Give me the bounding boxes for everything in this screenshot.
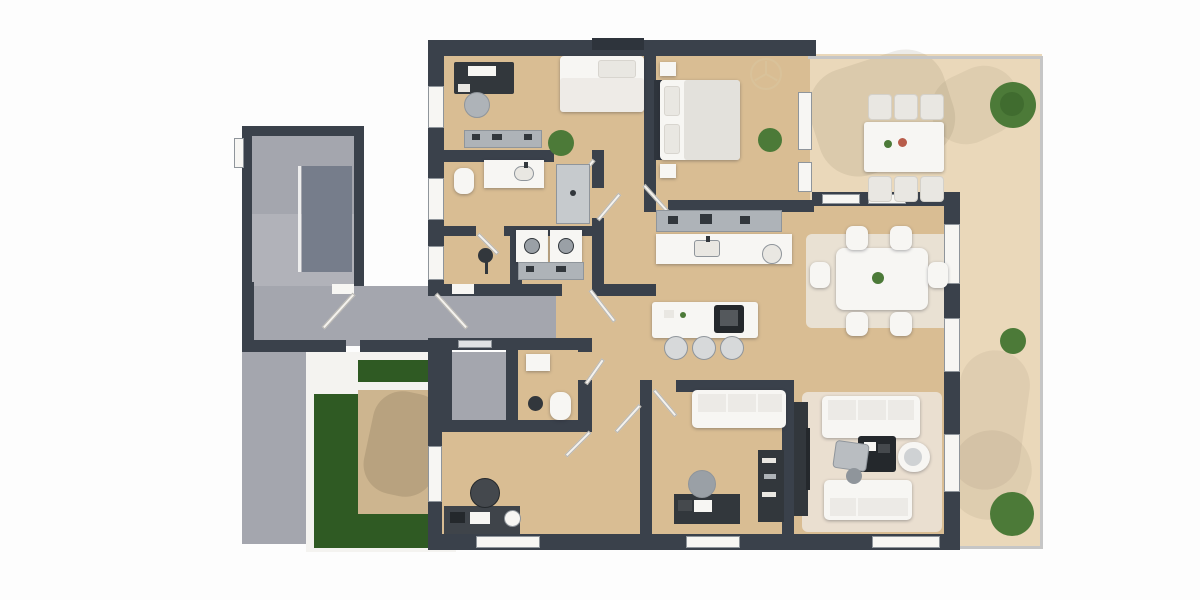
bookshelf-items-3 — [762, 492, 776, 497]
sideboard-item-2 — [556, 266, 566, 272]
terrace-chair-5 — [894, 176, 918, 202]
master-nightstand-2 — [660, 164, 676, 178]
stair-flight — [302, 166, 352, 272]
wall-hall-bottom-a — [428, 284, 562, 296]
floor-plan — [0, 0, 1200, 600]
dining-centerpiece — [872, 272, 884, 284]
terrace-chair-6 — [920, 176, 944, 202]
fan-spoke-3 — [765, 61, 767, 74]
bath-faucet — [524, 162, 528, 168]
wall-hall-bottom-b — [592, 284, 656, 296]
study-sofa-cushion-2 — [728, 394, 756, 412]
wall-wc-right-a — [578, 338, 592, 352]
wall-elevator-block — [428, 338, 452, 432]
sofa-top-cushion-3 — [888, 400, 914, 420]
lamp-stem — [485, 262, 488, 274]
threshold-entry — [560, 284, 592, 296]
stair-railing — [298, 166, 301, 272]
kids-desk-item — [458, 84, 470, 92]
kids-plant — [548, 130, 574, 156]
window-left-2 — [428, 178, 444, 220]
wall-elev-wc-divider — [506, 338, 518, 420]
coffee-table-book — [878, 444, 890, 453]
island-fruit — [680, 312, 686, 318]
cabinet-item-1 — [668, 216, 678, 224]
dresser-item-3 — [524, 134, 532, 140]
tv-screen — [806, 428, 810, 490]
dining-chair-5 — [810, 262, 830, 288]
kids-chair — [464, 92, 490, 118]
kids-bed-blanket — [560, 78, 644, 112]
dining-chair-6 — [928, 262, 948, 288]
window-master-right — [798, 162, 812, 192]
window-right-3 — [944, 434, 960, 492]
terrace-tree-core — [1000, 92, 1024, 116]
terrace-table — [864, 122, 944, 172]
dining-chair-4 — [890, 312, 912, 336]
grass-strip-bottom — [314, 512, 440, 548]
wall-study-left — [640, 380, 652, 534]
bar-stool-3 — [720, 336, 744, 360]
window-left-3 — [428, 246, 444, 280]
terrace-railing-right — [1040, 56, 1043, 548]
side-table — [846, 468, 862, 484]
elevator-floor — [452, 352, 512, 424]
armchair-seat — [904, 448, 922, 466]
sofa-bottom-cushion-1 — [830, 498, 856, 516]
terrace-railing-bottom — [950, 546, 1043, 549]
bath-toilet — [454, 168, 474, 194]
dresser-item-1 — [472, 134, 480, 140]
office-chair — [470, 478, 500, 508]
bar-stool-1 — [664, 336, 688, 360]
study-chair — [688, 470, 716, 498]
study-sofa-cushion-3 — [758, 394, 782, 412]
grass-strip-top — [358, 360, 438, 382]
window-living-south — [872, 536, 940, 548]
sofa-bottom-cushion-3 — [884, 498, 908, 516]
terrace-chair-2 — [894, 94, 918, 120]
doorframe-hall-1 — [332, 284, 354, 294]
terrace-door-master — [798, 92, 812, 150]
office-laptop — [450, 512, 465, 523]
office-trash — [504, 510, 521, 527]
window-study-south — [686, 536, 740, 548]
sofa-top-cushion-2 — [858, 400, 886, 420]
sideboard-item-1 — [526, 266, 534, 272]
wall-office-bottom — [428, 534, 658, 550]
kitchen-round-sink — [762, 244, 782, 264]
wall-below-hall-a — [242, 340, 346, 352]
terrace-table-deco-1 — [884, 140, 892, 148]
cabinet-item-2 — [700, 214, 712, 224]
study-sofa-cushion-1 — [698, 394, 726, 412]
dining-chair-3 — [846, 312, 868, 336]
window-right-2 — [944, 318, 960, 372]
kitchen-sink — [694, 240, 720, 257]
window-dining-1 — [822, 194, 860, 204]
window-office-west — [428, 446, 442, 502]
terrace-bush — [990, 492, 1034, 536]
cooktop-burners — [720, 310, 738, 326]
doorframe-hall-2 — [452, 284, 474, 294]
hall-floor-lamp — [478, 248, 493, 263]
bar-stool-2 — [692, 336, 716, 360]
elevator-doors — [458, 340, 492, 348]
terrace-railing-top — [808, 56, 1042, 59]
master-plant — [758, 128, 782, 152]
shower-drain — [570, 190, 576, 196]
kids-bed-pillow — [598, 60, 636, 78]
kids-monitor — [468, 66, 496, 76]
study-papers — [694, 500, 712, 512]
path-steps — [242, 498, 308, 544]
wc-toilet — [550, 392, 571, 420]
sofa-top-cushion-1 — [828, 400, 856, 420]
master-pillow-1 — [664, 86, 680, 116]
path-floor — [242, 352, 308, 502]
bookshelf-items-1 — [762, 458, 776, 463]
kids-bed-headboard — [592, 38, 644, 50]
wall-bath-right-a — [592, 150, 604, 188]
island-bowl — [664, 310, 674, 318]
dresser-item-2 — [492, 134, 502, 140]
window-left-1 — [428, 86, 444, 128]
dryer-door — [558, 238, 574, 254]
kitchen-faucet — [706, 236, 710, 242]
office-papers — [470, 512, 490, 524]
master-pillow-2 — [664, 124, 680, 154]
bath-basin — [514, 166, 534, 181]
cabinet-item-3 — [740, 216, 750, 224]
wc-lamp — [528, 396, 543, 411]
terrace-chair-3 — [920, 94, 944, 120]
terrace-chair-1 — [868, 94, 892, 120]
wall-wc-bottom — [506, 420, 592, 432]
wall-bath-bottom-a — [444, 226, 476, 236]
study-laptop — [678, 500, 692, 511]
terrace-plant — [1000, 328, 1026, 354]
stairwell-window — [234, 138, 244, 168]
threshold-corridor — [592, 420, 616, 432]
hallway-left-wall — [242, 282, 254, 346]
master-blanket — [684, 80, 740, 160]
terrace-table-deco-2 — [898, 138, 907, 147]
dining-chair-2 — [890, 226, 912, 250]
washer-door — [524, 238, 540, 254]
wc-sink — [526, 354, 550, 371]
dining-chair-1 — [846, 226, 868, 250]
master-nightstand-1 — [660, 62, 676, 76]
bookshelf-items-2 — [764, 474, 776, 479]
terrace-chair-4 — [868, 176, 892, 202]
wall-below-hall-b — [360, 340, 440, 352]
window-office-south — [476, 536, 540, 548]
sofa-bottom-cushion-2 — [858, 498, 884, 516]
